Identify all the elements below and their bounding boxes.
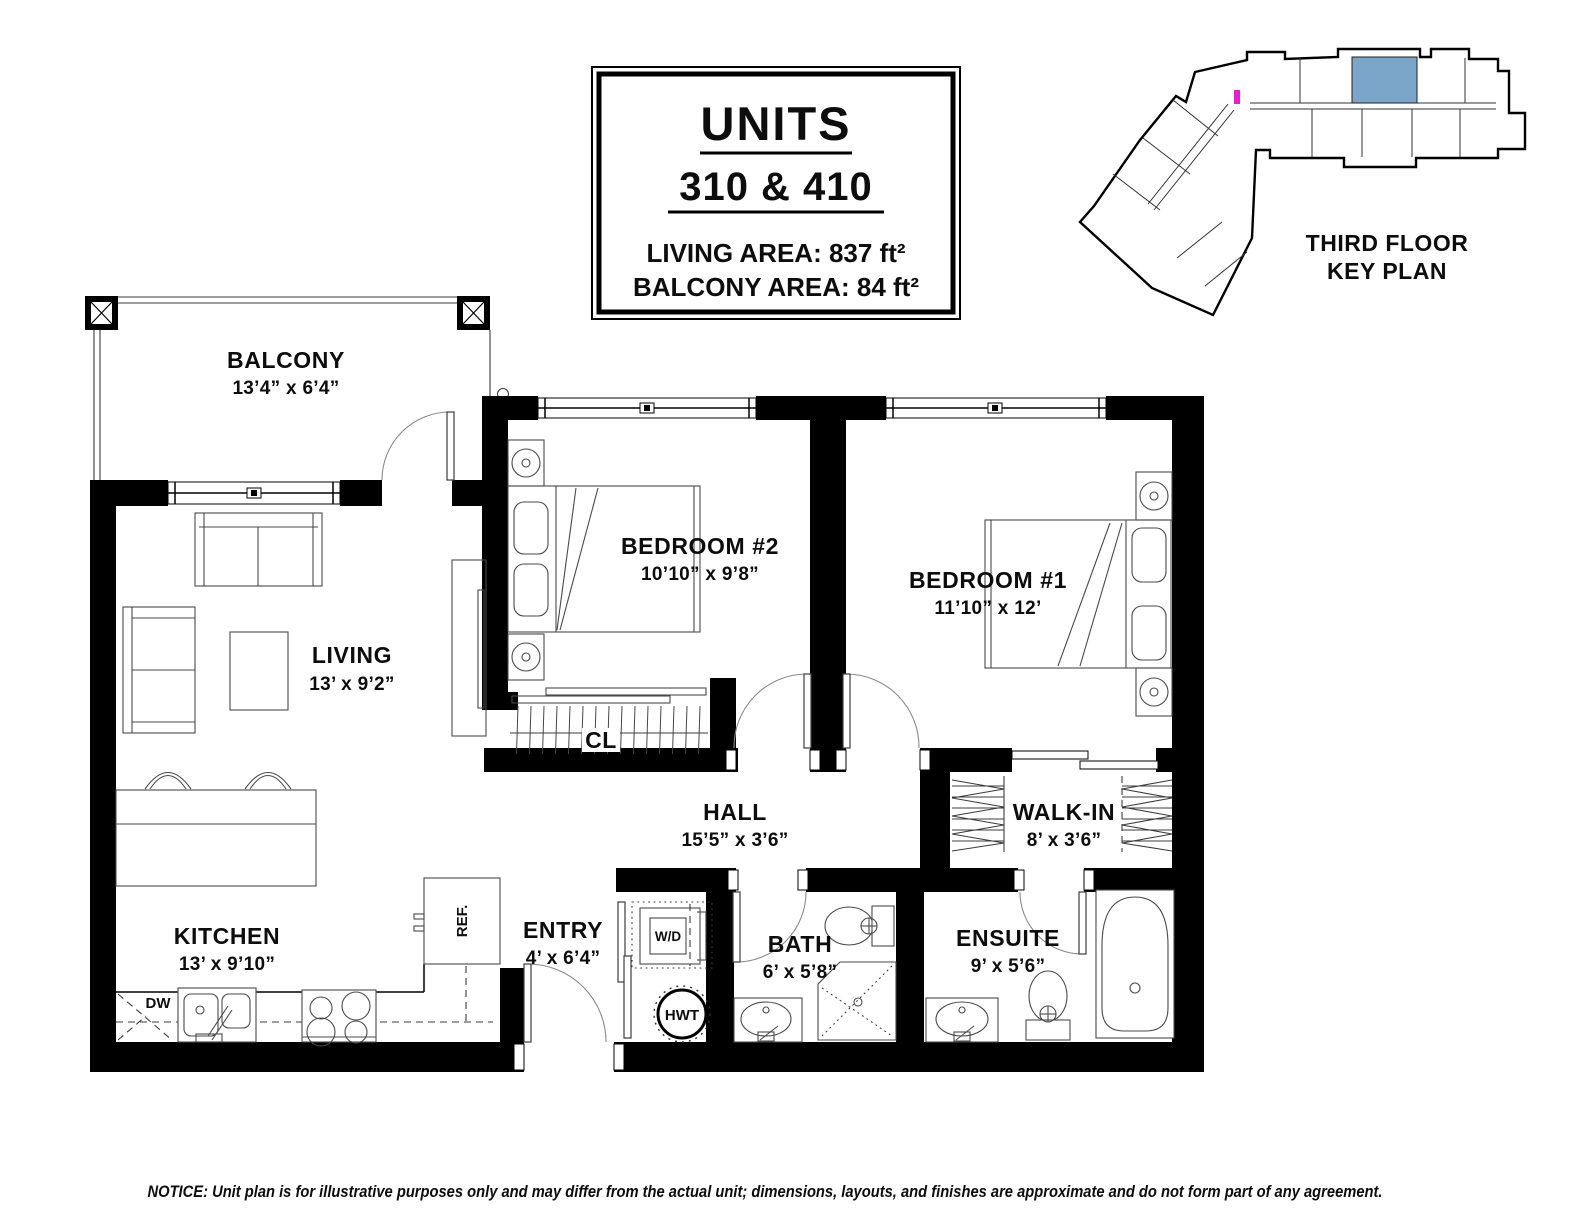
dishwasher-label: DW — [146, 995, 172, 1012]
walkin-label: WALK-IN — [1013, 799, 1116, 825]
living-area-label: LIVING AREA: 837 ft² — [646, 238, 905, 268]
bedroom1-window — [886, 398, 1106, 418]
title-block: UNITS 310 & 410 LIVING AREA: 837 ft² BAL… — [592, 67, 960, 319]
balcony-post-right — [457, 296, 490, 330]
kitchen-island — [116, 790, 316, 886]
balcony-dims: 13’4” x 6’4” — [232, 378, 339, 399]
closet-label: CL — [585, 727, 617, 753]
washer-dryer-label: W/D — [655, 929, 681, 944]
key-plan-caption-line1: THIRD FLOOR — [1306, 230, 1469, 256]
ensuite-tub — [1096, 890, 1174, 1038]
floor-plan-sheet: UNITS 310 & 410 LIVING AREA: 837 ft² BAL… — [0, 0, 1584, 1224]
kitchen-label: KITCHEN — [174, 923, 280, 949]
bedroom2-window — [538, 398, 756, 418]
key-plan-stair-marker — [1234, 90, 1240, 104]
living-label: LIVING — [312, 642, 392, 668]
ensuite-toilet — [1026, 971, 1070, 1040]
bath-vanity — [734, 998, 802, 1042]
bedroom2-label: BEDROOM #2 — [621, 533, 779, 559]
hall-dims: 15’5” x 3’6” — [681, 830, 788, 851]
balcony-label: BALCONY — [227, 347, 345, 373]
kitchen-dims: 13’ x 9’10” — [179, 954, 275, 975]
refrigerator-label: REF. — [454, 905, 471, 938]
bath-dims: 6’ x 5’8” — [763, 962, 838, 983]
key-plan-unit-highlight — [1352, 57, 1417, 103]
bath-toilet — [825, 906, 894, 946]
bedroom2-dims: 10’10” x 9’8” — [641, 564, 759, 585]
notice-text: NOTICE: Unit plan is for illustrative pu… — [148, 1183, 1383, 1201]
ensuite-vanity — [926, 998, 998, 1042]
living-dims: 13’ x 9’2” — [309, 674, 394, 695]
bedroom1-label: BEDROOM #1 — [909, 567, 1067, 593]
unit-numbers: 310 & 410 — [679, 165, 873, 209]
entry-dims: 4’ x 6’4” — [526, 948, 601, 969]
balcony-post-left — [85, 296, 118, 330]
units-title: UNITS — [701, 97, 852, 150]
ensuite-dims: 9’ x 5’6” — [971, 956, 1046, 977]
balcony-area-label: BALCONY AREA: 84 ft² — [633, 272, 919, 302]
bath-label: BATH — [768, 931, 833, 957]
hall-label: HALL — [703, 799, 767, 825]
kitchen-sink — [178, 988, 256, 1042]
hot-water-tank-label: HWT — [665, 1007, 699, 1024]
living-window — [168, 482, 340, 504]
walkin-dims: 8’ x 3’6” — [1027, 830, 1102, 851]
bedroom1-dims: 11’10” x 12’ — [934, 598, 1041, 619]
key-plan-caption-line2: KEY PLAN — [1327, 258, 1447, 284]
entry-label: ENTRY — [523, 917, 603, 943]
stove — [302, 990, 376, 1046]
ensuite-label: ENSUITE — [956, 925, 1060, 951]
